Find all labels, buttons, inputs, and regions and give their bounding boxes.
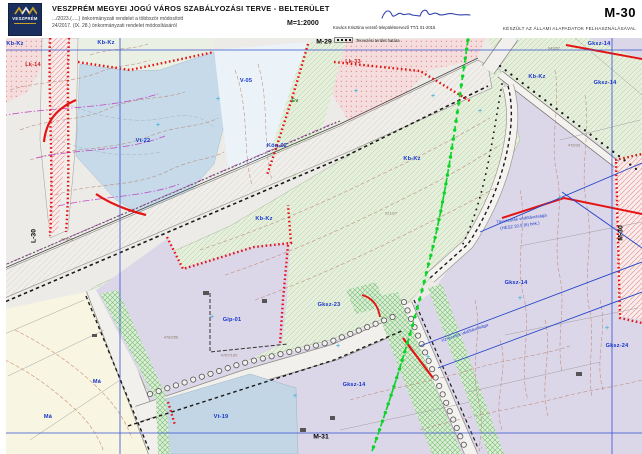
legend-label: Tervezési terület határa: [356, 38, 400, 43]
veszprem-city-logo: VESZPRÉM: [8, 3, 42, 36]
logo-divider: [14, 23, 36, 24]
title-block: VESZPRÉM VESZPRÉM MEGYEI JOGÚ VÁROS SZAB…: [0, 0, 642, 38]
logo-text: VESZPRÉM: [9, 16, 41, 21]
decree-line-1: .../2023.(.....) önkormányzati rendelet …: [52, 16, 183, 22]
decree-line-2: 24/2017. (IX. 28.) önkormányzati rendele…: [52, 23, 177, 29]
sheet-code: M-30: [604, 5, 636, 20]
logo-emblem-icon: [13, 6, 37, 15]
planner-signature: [378, 2, 473, 24]
map-sheet: Kb-KzKb-KzLk-14Vt-22V-05Lk-33EvKöu-02Kb-…: [0, 0, 642, 454]
planner-name: Kovács Krisztina vezető településtervező…: [333, 25, 435, 30]
map-scale: M=1:2000: [287, 20, 319, 27]
planning-boundary-swatch-icon: [334, 37, 353, 43]
state-data-credit: KÉSZÜLT AZ ÁLLAMI ALAPADATOK FELHASZNÁLÁ…: [503, 26, 636, 31]
map-title: VESZPRÉM MEGYEI JOGÚ VÁROS SZABÁLYOZÁSI …: [52, 4, 330, 13]
map-canvas: [0, 0, 642, 454]
legend-row: Tervezési terület határa: [334, 32, 400, 37]
